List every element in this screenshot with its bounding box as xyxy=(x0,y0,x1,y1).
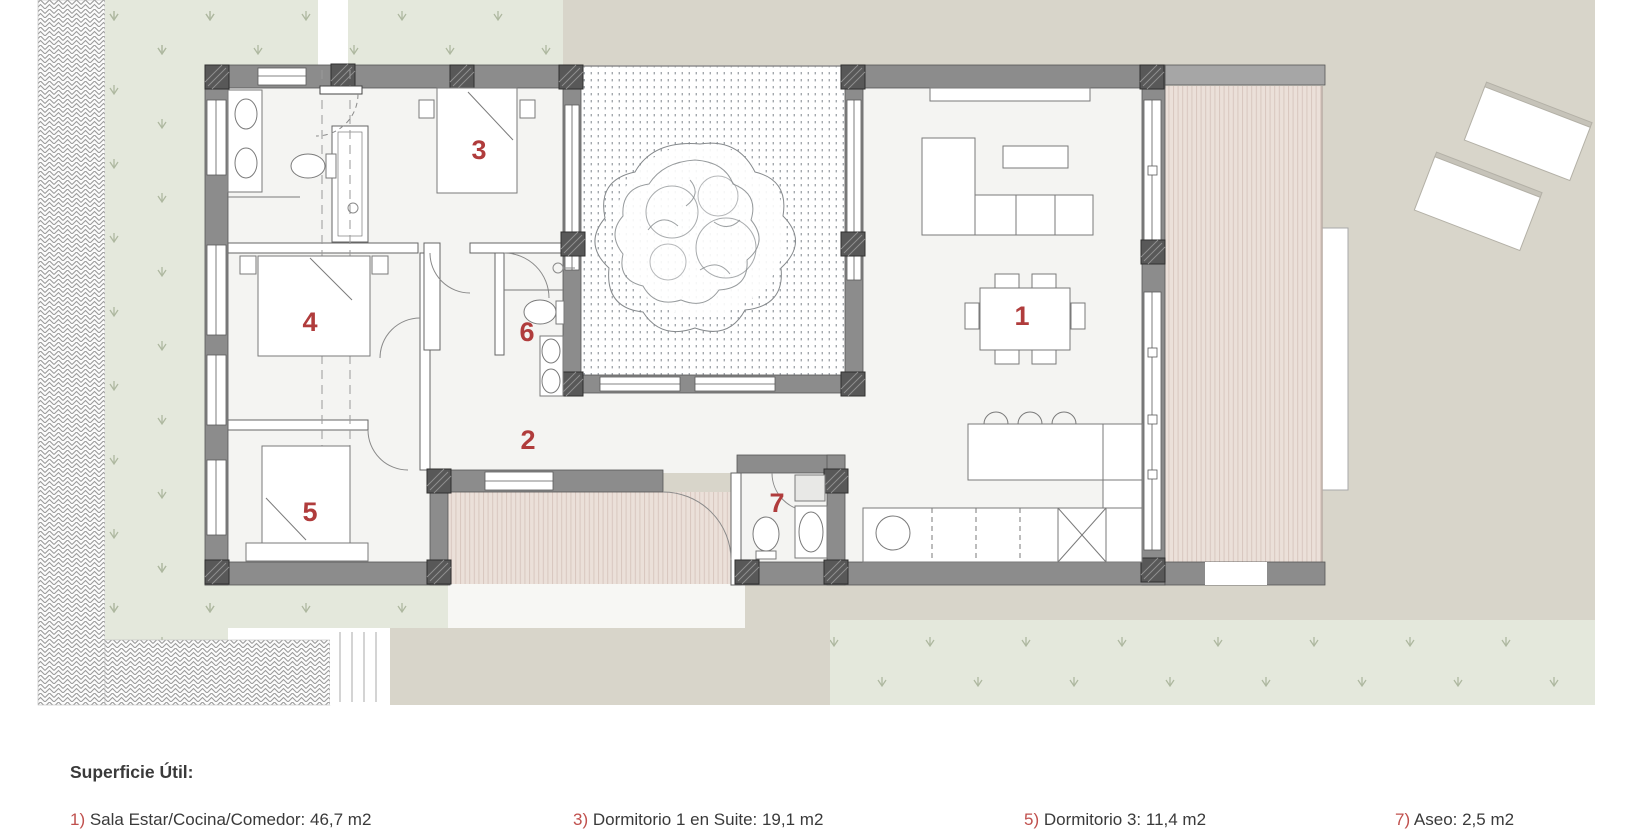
room-label-2: 2 xyxy=(520,425,535,455)
bed-room4 xyxy=(240,256,388,356)
hatched-terrace-bottom xyxy=(105,640,330,705)
entrance-walkway xyxy=(318,0,348,66)
page: 1234567 Superficie Útil: 1) Sala Estar/C… xyxy=(0,0,1638,840)
courtyard xyxy=(563,66,845,375)
deck-south xyxy=(447,492,737,584)
deck-east xyxy=(1165,86,1322,564)
room-label-3: 3 xyxy=(471,135,486,165)
legend-item-7: 7) Aseo: 2,5 m2 xyxy=(1395,810,1514,830)
legend-item-7-number: 7) xyxy=(1395,810,1410,829)
grass-bottom-right xyxy=(830,620,1595,705)
room-label-5: 5 xyxy=(302,497,317,527)
room-label-4: 4 xyxy=(302,307,317,337)
legend-item-3-text: Dormitorio 1 en Suite: 19,1 m2 xyxy=(588,810,823,829)
legend-item-5-number: 5) xyxy=(1024,810,1039,829)
legend-item-3: 3) Dormitorio 1 en Suite: 19,1 m2 xyxy=(573,810,823,830)
room-label-1: 1 xyxy=(1014,301,1029,331)
hatched-path-left xyxy=(38,0,105,705)
floor-plan: 1234567 xyxy=(0,0,1638,706)
room-label-7: 7 xyxy=(769,488,784,518)
legend-item-5-text: Dormitorio 3: 11,4 m2 xyxy=(1039,810,1206,829)
legend-item-5: 5) Dormitorio 3: 11,4 m2 xyxy=(1024,810,1206,830)
legend-item-3-number: 3) xyxy=(573,810,588,829)
legend-item-1: 1) Sala Estar/Cocina/Comedor: 46,7 m2 xyxy=(70,810,371,830)
room-label-6: 6 xyxy=(519,317,534,347)
legend-item-1-number: 1) xyxy=(70,810,85,829)
legend-item-1-text: Sala Estar/Cocina/Comedor: 46,7 m2 xyxy=(85,810,371,829)
exterior-steps xyxy=(330,628,390,705)
legend-item-7-text: Aseo: 2,5 m2 xyxy=(1410,810,1514,829)
legend-title: Superficie Útil: xyxy=(70,762,194,783)
